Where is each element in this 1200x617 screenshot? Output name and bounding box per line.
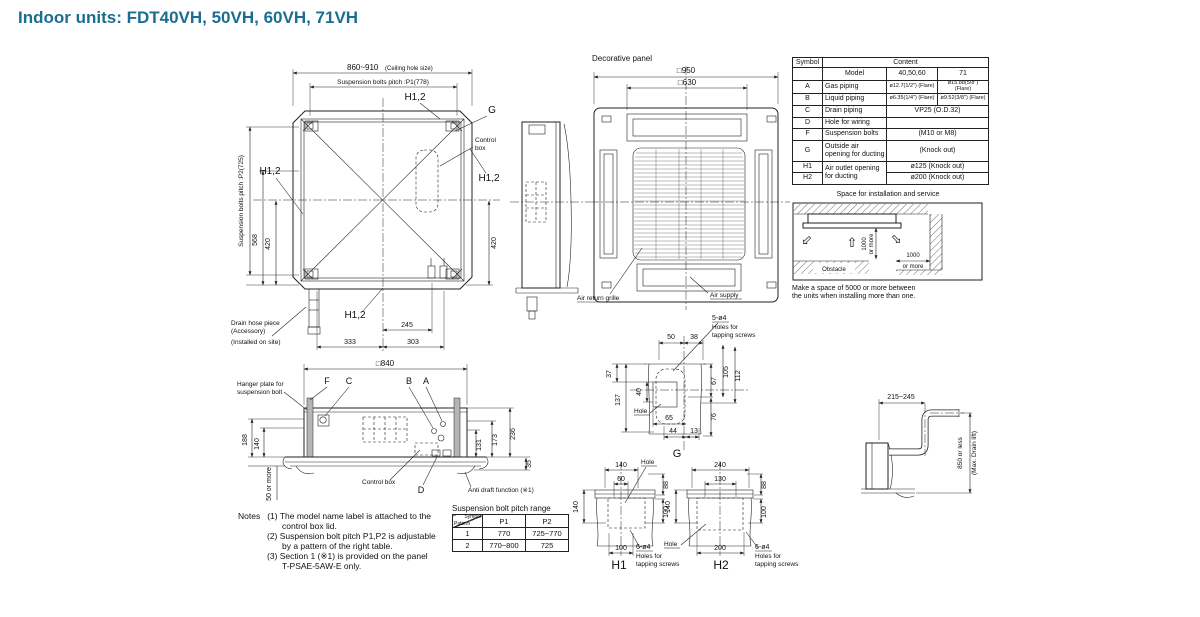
drawing-shape	[310, 387, 327, 400]
pitch-cell: 770	[483, 528, 526, 540]
part-label: Hanger plate for	[237, 381, 284, 388]
airflow-arrow-icon: ⇧	[887, 230, 905, 248]
dim-label: or more	[903, 264, 924, 270]
part-label: suspension bolt	[237, 389, 282, 396]
drawing-shape	[759, 154, 768, 254]
dim-label: 50	[667, 334, 675, 341]
dim-label: 860~910	[347, 63, 379, 72]
dim-label: Suspension bolts pitch :P2(725)	[238, 155, 245, 247]
drawing-shape	[325, 387, 349, 416]
dim-label: (Max. Drain lift)	[971, 431, 978, 475]
spec-cell: Outside air opening for ducting	[823, 140, 887, 161]
spec-cell: ø200 (Knock out)	[887, 172, 989, 184]
spec-cell: H1	[793, 161, 823, 172]
g-detail: 50 38 37 137 40 67 105 112 76 Hole 65 44…	[606, 315, 756, 460]
dim-label: 303	[407, 339, 419, 346]
pitch-table: Suspension bolt pitch range Symbol Patte…	[452, 504, 569, 552]
pitch-cell: 725~770	[526, 528, 569, 540]
drawing-shape	[650, 404, 661, 413]
dim-label: 65	[665, 415, 673, 422]
drawing-shape	[767, 116, 776, 122]
part-label: C	[346, 376, 353, 386]
spec-cell: F	[793, 128, 823, 140]
drawing-shape	[451, 271, 457, 277]
notes-label: Notes	[238, 511, 260, 521]
drawing-shape	[648, 364, 649, 434]
drawing-shape	[767, 282, 776, 288]
spec-cell: ø125 (Knock out)	[887, 161, 989, 172]
drawing-shape	[426, 387, 442, 421]
drawing-shape	[604, 154, 613, 254]
spec-cell: Model	[823, 68, 887, 81]
drawing-shape	[284, 392, 307, 410]
air-return-grille	[633, 148, 745, 260]
drawing-shape	[362, 288, 383, 312]
drawing-shape	[690, 277, 708, 293]
drawing-shape	[700, 364, 701, 434]
drawing-shape	[304, 408, 467, 457]
dim-label: 333	[344, 339, 356, 346]
spec-cell: A	[793, 81, 823, 94]
part-label: tapping screws	[712, 332, 756, 339]
airflow-arrow-icon: ⇧	[798, 231, 816, 249]
dim-label: 88	[663, 481, 670, 489]
dim-label: 100	[761, 506, 768, 518]
dim-label: □950	[677, 66, 696, 75]
note-text: Make a space of 5000 or more between	[792, 285, 915, 292]
spec-cell	[887, 117, 989, 128]
dim-label: 236	[510, 428, 517, 440]
ceiling-hatch	[794, 204, 928, 214]
drain-diagram: 215~245 850 or less (Max. Drain lift)	[861, 394, 978, 497]
drawing-shape	[597, 498, 598, 546]
dim-label: 1000	[862, 237, 868, 251]
drawing-shape	[602, 116, 611, 122]
spec-cell: Drain piping	[823, 105, 887, 117]
drawing-shape	[276, 178, 303, 214]
pitch-cell: 2	[453, 540, 483, 552]
spec-cell: (M10 or M8)	[887, 128, 989, 140]
drawing-shape	[451, 123, 457, 129]
drawing-shape	[432, 429, 437, 434]
drawing-shape	[529, 125, 545, 134]
hanger-plate	[307, 398, 313, 457]
part-label: tapping screws	[636, 561, 680, 568]
pitch-cell: 725	[526, 540, 569, 552]
drawing-shape	[637, 264, 741, 291]
spec-cell: D	[793, 117, 823, 128]
dim-label: 44	[669, 428, 677, 435]
spec-cell: ø6.35(1/4") (Flare)	[887, 93, 938, 105]
drawing-shape	[896, 493, 914, 497]
drawing-shape	[803, 223, 901, 228]
drawing-shape	[564, 124, 571, 287]
drawing-shape	[416, 150, 438, 212]
section-title: Space for installation and service	[837, 191, 940, 198]
drawing-shape	[443, 450, 451, 456]
part-label: F	[324, 376, 330, 386]
spec-cell: B	[793, 93, 823, 105]
drawing-shape	[643, 269, 735, 286]
dim-label: 200	[714, 545, 726, 552]
drawing-shape	[390, 450, 420, 480]
spec-cell: Hole for wiring	[823, 117, 887, 128]
dim-label: 140	[615, 462, 627, 469]
dim-label: 60	[617, 476, 625, 483]
section-view: □840 Hanger plate for suspension bolt F …	[237, 359, 534, 501]
drawing-shape	[600, 150, 617, 258]
part-label: G	[488, 105, 496, 116]
drawing-shape	[653, 382, 677, 407]
drawing-shape	[652, 498, 653, 546]
part-label: box	[475, 145, 486, 152]
drawing-shape	[296, 466, 314, 474]
dim-label: 140	[254, 438, 261, 450]
part-label: H1,2	[344, 310, 366, 321]
dim-label: 67	[711, 377, 718, 385]
detail-label: H1	[611, 558, 627, 572]
drawing-shape	[479, 457, 488, 469]
dim-label: or more	[869, 233, 875, 254]
part-label: Control box	[362, 479, 396, 486]
part-label: Air supply	[710, 292, 739, 299]
drawing-shape	[529, 311, 535, 319]
pitch-corner-cell: Symbol Pattern	[453, 515, 483, 528]
drawing-shape	[423, 457, 437, 485]
spec-cell: Gas piping	[823, 81, 887, 94]
part-label: (Installed on site)	[231, 339, 281, 346]
part-label: Holes for	[755, 553, 782, 560]
part-label: Hole	[634, 408, 648, 415]
drawing-shape	[633, 119, 741, 136]
dim-label: 100	[615, 545, 627, 552]
part-label: Holes for	[636, 553, 663, 560]
spec-cell: Liquid piping	[823, 93, 887, 105]
spec-cell: C	[793, 105, 823, 117]
dim-label: Suspension bolts pitch :P1(778)	[337, 79, 429, 86]
dim-label: □840	[376, 359, 395, 368]
h2-detail: 240 130 88 140 100 200 Hole 6-ø4 Holes f…	[664, 461, 799, 572]
h1-detail: 140 60 Hole 88 140 100 100 6-ø4 Holes fo…	[573, 459, 680, 572]
dim-label: 240	[714, 462, 726, 469]
drawing-sheet: Indoor units: FDT40VH, 50VH, 60VH, 71VH	[0, 0, 1200, 617]
dim-label: 850 or less	[957, 436, 964, 469]
drawing-shape	[440, 147, 473, 166]
pitch-header-p2: P2	[526, 515, 569, 528]
dim-label: 37	[606, 370, 613, 378]
dim-label: 420	[265, 238, 272, 250]
part-label: H1,2	[259, 166, 281, 177]
part-label: H1,2	[404, 92, 426, 103]
spec-cell: ø12.7(1/2") (Flare)	[887, 81, 938, 94]
dim-label: 131	[476, 439, 483, 451]
part-label: (Accessory)	[231, 328, 265, 335]
part-label: Anti draft function (※1)	[468, 487, 534, 494]
note-line: control box lid.	[282, 521, 436, 531]
dim-note: (Ceiling hole size)	[385, 66, 433, 72]
wall-hatch	[930, 214, 942, 270]
side-view	[510, 122, 590, 319]
part-label: 6-ø4	[755, 544, 770, 551]
dim-label: 35	[526, 460, 533, 468]
part-label: Holes for	[712, 324, 739, 331]
part-label: A	[423, 376, 429, 386]
part-label: 6-ø4	[636, 544, 651, 551]
spec-cell: G	[793, 140, 823, 161]
spec-cell	[793, 68, 823, 81]
dim-label: 112	[735, 370, 742, 381]
drawing-shape	[465, 472, 471, 487]
unit-outline	[866, 443, 888, 489]
note-text: the units when installing more than one.	[792, 293, 915, 300]
part-label: Air return grille	[577, 295, 620, 302]
drawing-shape	[309, 289, 319, 327]
drawing-shape	[889, 413, 959, 452]
drawing-shape	[415, 443, 438, 455]
detail-label: H2	[713, 558, 729, 572]
drawing-shape	[283, 457, 292, 469]
spec-cell: 40,50,60	[887, 68, 938, 81]
drawing-shape	[428, 266, 435, 278]
spec-cell: (Knock out)	[887, 140, 989, 161]
note-line: T-PSAE-5AW-E only.	[282, 561, 436, 571]
drawing-shape	[896, 270, 942, 275]
drawing-shape	[602, 282, 611, 288]
drawing-shape	[308, 327, 320, 334]
dim-label: 215~245	[887, 394, 915, 401]
part-label: Hole	[641, 459, 655, 466]
notes-block: Notes(1) The model name label is attache…	[238, 511, 436, 571]
pitch-cell: 1	[453, 528, 483, 540]
part-label: tapping screws	[755, 561, 799, 568]
spec-cell: VP25 (O.D.32)	[887, 105, 989, 117]
pitch-header-p1: P1	[483, 515, 526, 528]
spec-table: Symbol Content Model 40,50,60 71 A Gas p…	[792, 57, 989, 185]
note-line: by a pattern of the right table.	[282, 541, 436, 551]
drain-hose	[308, 289, 320, 334]
dim-label: 88	[761, 481, 768, 489]
dim-label: 137	[615, 394, 622, 406]
drawing-shape	[627, 114, 747, 141]
part-label: Obstacle	[822, 267, 846, 273]
spec-header-content: Content	[823, 58, 989, 68]
dim-label: 40	[636, 388, 643, 396]
drawing-shape	[457, 466, 475, 474]
note-line: (3) Section 1 (※1) is provided on the pa…	[267, 551, 436, 561]
part-label: 5-ø4	[712, 315, 727, 322]
dim-label: 50 or more	[266, 467, 273, 501]
unit-body	[808, 214, 896, 223]
airflow-arrow-icon: ⇧	[847, 235, 858, 250]
note-line: (1) The model name label is attached to …	[267, 511, 431, 521]
dim-label: 105	[723, 366, 730, 378]
dim-label: 13	[690, 428, 698, 435]
pitch-header-symbol: Symbol	[464, 515, 481, 520]
dim-label: 140	[573, 501, 580, 513]
hanger-plate	[454, 398, 460, 457]
dim-label: 140	[665, 501, 672, 513]
note-line: (2) Suspension bolt pitch P1,P2 is adjus…	[267, 531, 436, 541]
plan-view: 860~910 (Ceiling hole size) Suspension b…	[231, 63, 500, 352]
dim-label: 420	[491, 237, 498, 249]
dim-label: □630	[678, 78, 697, 87]
drawing-shape	[441, 422, 446, 427]
spec-cell: Air outlet opening for ducting	[823, 161, 887, 184]
drawing-shape	[681, 524, 706, 545]
part-label: D	[418, 485, 425, 495]
drawing-shape	[438, 435, 444, 441]
spec-cell: ø15.88(5/8") (Flare)	[938, 81, 989, 94]
dim-label: 1000	[906, 253, 920, 259]
spec-header-symbol: Symbol	[793, 58, 823, 68]
part-label: B	[406, 376, 412, 386]
dim-label: 245	[401, 322, 413, 329]
view-title: Decorative panel	[592, 54, 652, 63]
spec-cell: ø9.52(3/8") (Flare)	[938, 93, 989, 105]
technical-drawing: 860~910 (Ceiling hole size) Suspension b…	[0, 0, 1200, 617]
drawing-shape	[527, 297, 537, 311]
dim-label: 130	[714, 476, 726, 483]
pitch-header-pattern: Pattern	[454, 522, 470, 527]
detail-label: G	[673, 448, 682, 460]
dim-label: 173	[492, 434, 499, 446]
dim-label: 188	[242, 434, 249, 446]
dim-label: 76	[711, 413, 718, 421]
drawing-shape	[755, 150, 772, 258]
drawing-shape	[320, 417, 326, 423]
part-label: H1,2	[478, 173, 500, 184]
drawing-shape	[608, 498, 645, 528]
space-diagram: Space for installation and service ⇧ ⇧ ⇧…	[792, 191, 982, 300]
panel-view: Decorative panel □950 □630 Air return gr…	[577, 54, 790, 310]
part-label: Hole	[664, 541, 678, 548]
spec-cell: 71	[938, 68, 989, 81]
dim-label: 568	[252, 234, 259, 246]
spec-cell: H2	[793, 172, 823, 184]
dim-label: 38	[690, 334, 698, 341]
pitch-table-title: Suspension bolt pitch range	[452, 504, 569, 513]
part-label: Drain hose piece	[231, 320, 280, 327]
drawing-shape	[522, 122, 560, 288]
part-label: Control	[475, 137, 497, 144]
spec-cell: Suspension bolts	[823, 128, 887, 140]
pitch-cell: 770~800	[483, 540, 526, 552]
